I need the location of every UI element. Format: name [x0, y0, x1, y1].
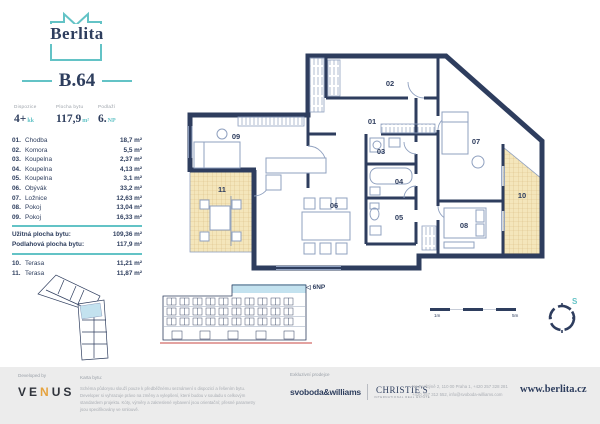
svoboda-williams-logo: svoboda&williams: [290, 387, 361, 397]
scale-label-end: 5m: [512, 313, 518, 318]
building-elevation: [160, 282, 312, 350]
compass-icon: S: [542, 294, 584, 336]
title-dash-right: [102, 80, 132, 82]
footer: Developed by VENUS Karta bytu: Schéma pů…: [0, 367, 600, 424]
card-disclaimer-text: Schéma půdorysu slouží pouze k předběžné…: [80, 385, 256, 413]
brand-name: Berlita: [48, 24, 106, 44]
website-link[interactable]: www.berlita.cz: [520, 384, 586, 395]
unit-stats: Dispozice4+kkPlocha bytu117,9m²Podlaží6.…: [12, 104, 142, 125]
room-row: 07.Ložnice12,63 m²: [12, 194, 142, 204]
rooms-table: 01.Chodba18,7 m²02.Komora5,5 m²03.Koupel…: [12, 136, 142, 222]
exterior-row: 10.Terasa11,21 m²: [12, 259, 142, 269]
room-label-05: 05: [395, 213, 403, 222]
divider: [12, 225, 142, 227]
left-triangle-icon: ◁: [306, 285, 311, 291]
agency-block: Exkluzivní prodejce svoboda&williams CHR…: [290, 372, 430, 400]
unit-code: B.64: [59, 70, 95, 92]
title-dash-left: [22, 80, 52, 82]
brand-logo: Berlita: [12, 6, 142, 64]
door-arcs: [254, 82, 452, 220]
stat-dispozice: Dispozice4+kk: [14, 104, 56, 125]
room-row: 06.Obývák33,2 m²: [12, 184, 142, 194]
room-label-09: 09: [232, 132, 240, 141]
unit-title: B.64: [12, 70, 142, 92]
developer-block: Developed by VENUS: [18, 373, 74, 399]
room-label-11: 11: [218, 185, 226, 194]
stat-plocha-bytu: Plocha bytu117,9m²: [56, 104, 98, 125]
north-label: S: [572, 297, 578, 306]
summary-row: Užitná plocha bytu:109,36 m²: [12, 230, 142, 240]
room-label-01: 01: [368, 117, 376, 126]
divider: [12, 253, 142, 255]
scale-bar: 1m 5m: [430, 308, 534, 322]
room-row: 08.Pokoj13,04 m²: [12, 203, 142, 213]
room-row: 03.Koupelna2,37 m²: [12, 155, 142, 165]
unit-info-panel: Berlita B.64 Dispozice4+kkPlocha bytu117…: [12, 6, 142, 278]
divider: [367, 384, 368, 400]
room-label-03: 03: [377, 147, 385, 156]
scale-segment: [430, 308, 450, 311]
area-summary: Užitná plocha bytu:109,36 m²Podlahová pl…: [12, 230, 142, 250]
scale-label-start: 1m: [434, 313, 440, 318]
floor-marker: ◁6NP: [306, 284, 325, 291]
stat-podlaží: Podlaží6.NP: [98, 104, 140, 125]
unit-card-block: Karta bytu: Schéma půdorysu slouží pouze…: [80, 375, 256, 413]
room-row: 01.Chodba18,7 m²: [12, 136, 142, 146]
room-row: 02.Komora5,5 m²: [12, 146, 142, 156]
contact-line1: Na Perštýně 2, 110 00 Praha 1, +420 257 …: [412, 383, 512, 391]
site-key-plan: [24, 270, 126, 364]
contact-info: Na Perštýně 2, 110 00 Praha 1, +420 257 …: [412, 383, 512, 398]
terrace-10-area: [503, 147, 542, 256]
room-row: 04.Koupelna4,13 m²: [12, 165, 142, 175]
room-row: 09.Pokoj16,33 m²: [12, 213, 142, 223]
room-label-02: 02: [386, 79, 394, 88]
summary-row: Podlahová plocha bytu:117,9 m²: [12, 240, 142, 250]
exclusive-seller-label: Exkluzivní prodejce: [290, 372, 430, 377]
room-label-04: 04: [395, 177, 404, 186]
card-title: Karta bytu:: [80, 375, 256, 380]
highlighted-unit: [80, 303, 102, 319]
room-label-08: 08: [460, 221, 468, 230]
room-label-10: 10: [518, 191, 526, 200]
room-row: 05.Koupelna3,1 m²: [12, 174, 142, 184]
room-label-06: 06: [330, 201, 338, 210]
contact-line2: +420 257 312 552, info@svoboda-williams.…: [412, 391, 512, 399]
floor-plan: 0102030405060708091011: [176, 46, 558, 280]
developed-by-label: Developed by: [18, 373, 74, 378]
room-label-07: 07: [472, 137, 480, 146]
developer-logo: VENUS: [18, 385, 74, 399]
